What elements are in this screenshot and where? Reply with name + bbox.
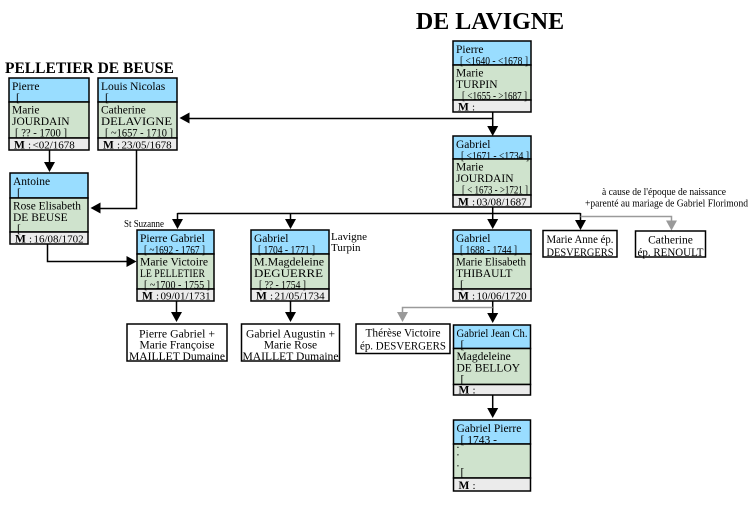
svg-text:TURPIN: TURPIN xyxy=(456,79,498,91)
svg-text:ép. DESVERGERS: ép. DESVERGERS xyxy=(360,341,446,353)
svg-text:Pierre Gabriel: Pierre Gabriel xyxy=(140,233,205,245)
svg-text:Marie Anne ép.: Marie Anne ép. xyxy=(547,234,614,246)
svg-text:Antoine: Antoine xyxy=(13,176,50,188)
svg-text::: : xyxy=(28,139,31,151)
svg-text:DE BEUSE: DE BEUSE xyxy=(13,212,68,224)
svg-text:M: M xyxy=(458,101,469,113)
svg-text::: : xyxy=(117,139,120,151)
svg-text:M: M xyxy=(15,233,26,245)
svg-text:09/01/1731: 09/01/1731 xyxy=(161,290,211,302)
svg-text:Pierre Gabriel +: Pierre Gabriel + xyxy=(139,328,215,340)
svg-text:[ 1704 - 1771 ]: [ 1704 - 1771 ] xyxy=(258,244,315,256)
svg-text:M: M xyxy=(459,384,470,396)
svg-text:Gabriel Jean Ch.: Gabriel Jean Ch. xyxy=(457,328,528,340)
svg-text:Catherine: Catherine xyxy=(101,104,146,116)
svg-text:Magdeleine: Magdeleine xyxy=(457,351,511,363)
svg-text:THIBAULT: THIBAULT xyxy=(456,268,512,280)
svg-text::: : xyxy=(472,290,475,302)
svg-text:[: [ xyxy=(461,467,465,479)
svg-text:[ 1743 -: [ 1743 - xyxy=(461,434,498,446)
svg-text:[: [ xyxy=(105,92,109,104)
svg-text:Turpin: Turpin xyxy=(331,242,361,254)
svg-text:Pierre: Pierre xyxy=(12,81,39,93)
svg-text:Gabriel: Gabriel xyxy=(456,233,490,245)
svg-text:[ < 1673 - >1721 ]: [ < 1673 - >1721 ] xyxy=(462,184,528,196)
svg-text:M: M xyxy=(14,139,25,151)
svg-text:Catherine: Catherine xyxy=(648,234,693,246)
svg-text:M: M xyxy=(459,480,470,492)
svg-text:[ ?? - 1700 ]: [ ?? - 1700 ] xyxy=(15,127,67,139)
svg-text::: : xyxy=(472,101,475,113)
svg-text:Marie Françoise: Marie Françoise xyxy=(140,340,215,352)
svg-text:ép. RENOULT: ép. RENOULT xyxy=(638,247,704,259)
svg-text:M: M xyxy=(103,139,114,151)
svg-text:St Suzanne: St Suzanne xyxy=(124,219,165,230)
svg-text::: : xyxy=(473,480,476,492)
svg-text:Gabriel Pierre: Gabriel Pierre xyxy=(457,423,522,435)
svg-text:Gabriel: Gabriel xyxy=(456,139,490,151)
svg-text:M.Magdeleine: M.Magdeleine xyxy=(254,256,324,268)
svg-text::: : xyxy=(270,290,273,302)
svg-text:Marie Rose: Marie Rose xyxy=(264,340,317,352)
svg-text:M: M xyxy=(458,196,469,208)
svg-text:DESVERGERS: DESVERGERS xyxy=(547,247,614,259)
svg-text:Marie Elisabeth: Marie Elisabeth xyxy=(456,256,526,268)
svg-text:[: [ xyxy=(17,187,21,199)
svg-text:Thérèse Victoire: Thérèse Victoire xyxy=(366,328,441,340)
svg-text::: : xyxy=(156,290,159,302)
svg-text:Marie Victoire: Marie Victoire xyxy=(140,256,208,268)
svg-text:Gabriel Augustin +: Gabriel Augustin + xyxy=(246,328,335,340)
svg-text:M: M xyxy=(142,290,153,302)
svg-text:LE PELLETIER: LE PELLETIER xyxy=(140,268,205,280)
svg-text:Rose Elisabeth: Rose Elisabeth xyxy=(13,200,81,212)
svg-text::: : xyxy=(29,233,32,245)
svg-text:M: M xyxy=(256,290,267,302)
svg-text:<02/1678: <02/1678 xyxy=(33,139,76,151)
svg-text:[ ~1692 - 1767 ]: [ ~1692 - 1767 ] xyxy=(144,244,205,256)
svg-text:.: . xyxy=(457,458,460,470)
svg-text:[ ~1657 - 1710 ]: [ ~1657 - 1710 ] xyxy=(105,127,173,139)
svg-text:Marie: Marie xyxy=(456,67,483,79)
svg-text:[ <1640 - <1678 ]: [ <1640 - <1678 ] xyxy=(460,55,528,67)
svg-text:Marie: Marie xyxy=(12,104,39,116)
svg-text:23/05/1678: 23/05/1678 xyxy=(122,139,173,151)
svg-text:Louis Nicolas: Louis Nicolas xyxy=(101,81,166,93)
svg-text:DEGUERRE: DEGUERRE xyxy=(254,268,323,280)
svg-text:DE BELLOY: DE BELLOY xyxy=(457,362,521,374)
svg-text:à cause de l'époque de naissan: à cause de l'époque de naissance xyxy=(602,186,726,198)
svg-text:[: [ xyxy=(16,92,20,104)
svg-text:[ 1688 - 1744 ]: [ 1688 - 1744 ] xyxy=(460,244,517,256)
svg-text:PELLETIER DE BEUSE: PELLETIER DE BEUSE xyxy=(5,60,174,77)
svg-text:MAILLET Dumaine: MAILLET Dumaine xyxy=(129,351,225,363)
svg-text:10/06/1720: 10/06/1720 xyxy=(477,290,528,302)
svg-text:JOURDAIN: JOURDAIN xyxy=(456,173,514,185)
svg-text:M: M xyxy=(458,290,469,302)
svg-text:Gabriel: Gabriel xyxy=(254,233,288,245)
svg-text:Marie: Marie xyxy=(456,161,483,173)
svg-text::: : xyxy=(473,384,476,396)
svg-text::: : xyxy=(472,196,475,208)
svg-text:03/08/1687: 03/08/1687 xyxy=(477,196,528,208)
svg-text:DE LAVIGNE: DE LAVIGNE xyxy=(416,9,564,35)
svg-text:DELAVIGNE: DELAVIGNE xyxy=(101,116,172,128)
svg-text:[: [ xyxy=(461,339,465,351)
svg-text:+parenté au mariage de Gabriel: +parenté au mariage de Gabriel Florimond xyxy=(585,198,748,210)
svg-text:16/08/1702: 16/08/1702 xyxy=(34,233,84,245)
svg-text:JOURDAIN: JOURDAIN xyxy=(12,116,70,128)
svg-text:Pierre: Pierre xyxy=(456,44,483,56)
svg-text:MAILLET Dumaine: MAILLET Dumaine xyxy=(243,351,339,363)
svg-text:21/05/1734: 21/05/1734 xyxy=(275,290,326,302)
